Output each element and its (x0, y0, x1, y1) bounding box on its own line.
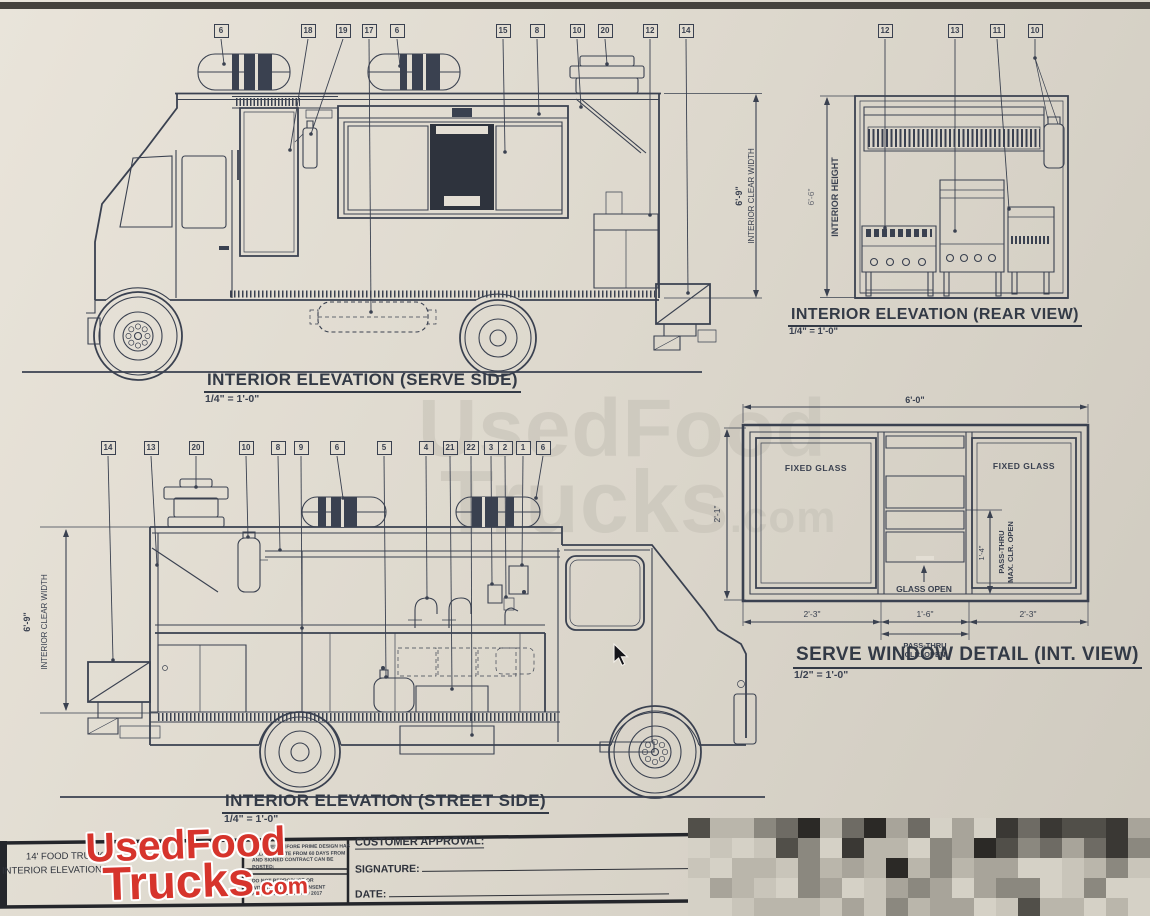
callout-13: 13 (948, 24, 963, 38)
mosaic-tile (776, 898, 798, 916)
cab-door-window (566, 556, 644, 630)
mosaic-tile (1040, 818, 1062, 838)
svg-text:1'-6": 1'-6" (917, 609, 934, 619)
mosaic-tile (1018, 858, 1040, 878)
callout-5: 5 (377, 441, 392, 455)
mosaic-tile (864, 838, 886, 858)
mosaic-tile (864, 898, 886, 916)
mosaic-tile (1062, 818, 1084, 838)
callout-3: 3 (484, 441, 499, 455)
mosaic-tile (1018, 898, 1040, 916)
rear-dim-label: INTERIOR HEIGHT (830, 157, 840, 237)
mosaic-tile (732, 898, 754, 916)
svg-text:2'-3": 2'-3" (804, 609, 821, 619)
callout-10: 10 (570, 24, 585, 38)
mosaic-tile (1128, 858, 1150, 878)
mosaic-tile (908, 878, 930, 898)
mosaic-tile (754, 838, 776, 858)
callout-14: 14 (679, 24, 694, 38)
pass-thru-glass (886, 436, 964, 562)
mosaic-tile (930, 898, 952, 916)
mosaic-tile (754, 818, 776, 838)
mosaic-tile (974, 818, 996, 838)
callout-22: 22 (464, 441, 479, 455)
mosaic-tile (1040, 898, 1062, 916)
pass-thru-side-label: PASS-THRU (997, 530, 1006, 573)
mosaic-tile (842, 858, 864, 878)
glass-open-label: GLASS OPEN (896, 584, 952, 594)
mosaic-tile (930, 818, 952, 838)
hand-sink (496, 608, 534, 674)
mosaic-tile (1062, 898, 1084, 916)
mosaic-tile (1018, 818, 1040, 838)
mosaic-tile (1040, 858, 1062, 878)
mosaic-tile (996, 878, 1018, 898)
blueprint-photo: UsedFood Trucks.com (0, 0, 1150, 916)
fixed-glass-right-label: FIXED GLASS (993, 461, 1055, 471)
mosaic-tile (798, 878, 820, 898)
towel-dispenser (509, 566, 528, 594)
usedfoodtrucks-logo: UsedFood Trucks.com (85, 824, 309, 904)
mosaic-tile (908, 898, 930, 916)
range-middle (940, 180, 1004, 296)
exhaust-hood (864, 107, 1044, 151)
mosaic-tile (688, 898, 710, 916)
mosaic-tile (842, 818, 864, 838)
mosaic-tile (688, 858, 710, 878)
mosaic-tile (974, 858, 996, 878)
street-dimension: 6'-9" INTERIOR CLEAR WIDTH (22, 527, 158, 713)
mosaic-tile (754, 858, 776, 878)
rear-view-title: INTERIOR ELEVATION (REAR VIEW) (788, 306, 1082, 327)
mosaic-tile (842, 878, 864, 898)
mosaic-tile (930, 858, 952, 878)
callout-9: 9 (294, 441, 309, 455)
street-side-title: INTERIOR ELEVATION (STREET SIDE) (222, 791, 549, 814)
callout-14: 14 (101, 441, 116, 455)
street-tank-1 (302, 497, 386, 527)
callout-8: 8 (530, 24, 545, 38)
mosaic-tile (710, 878, 732, 898)
mosaic-tile (1084, 838, 1106, 858)
mosaic-tile (820, 818, 842, 838)
callout-1: 1 (516, 441, 531, 455)
mosaic-tile (798, 838, 820, 858)
serve-side-title: INTERIOR ELEVATION (SERVE SIDE) (204, 370, 521, 393)
mosaic-tile (908, 858, 930, 878)
callout-13: 13 (144, 441, 159, 455)
mosaic-tile (886, 838, 908, 858)
mosaic-tile (996, 818, 1018, 838)
mosaic-tile (732, 858, 754, 878)
serve-side-drawing: 6'-9" INTERIOR CLEAR WIDTH (22, 54, 762, 380)
callout-8: 8 (271, 441, 286, 455)
callout-2: 2 (498, 441, 513, 455)
blueprint-line-art: 6'-9" INTERIOR CLEAR WIDTH (0, 0, 1150, 916)
mosaic-tile (710, 858, 732, 878)
soap-dispenser (488, 585, 502, 603)
street-side-drawing: 6'-9" INTERIOR CLEAR WIDTH (22, 479, 765, 798)
mosaic-tile (1106, 858, 1128, 878)
mosaic-tile (1128, 838, 1150, 858)
svg-text:6'-9": 6'-9" (734, 186, 744, 205)
mosaic-tile (864, 878, 886, 898)
callout-11: 11 (990, 24, 1005, 38)
svg-text:6'-0": 6'-0" (905, 395, 924, 405)
mosaic-tile (886, 858, 908, 878)
serve-dimension: 6'-9" INTERIOR CLEAR WIDTH (664, 94, 762, 299)
mosaic-tile (776, 858, 798, 878)
mosaic-tile (996, 858, 1018, 878)
callout-21: 21 (443, 441, 458, 455)
svg-text:2'-3": 2'-3" (1020, 609, 1037, 619)
fixed-glass-left (756, 438, 876, 588)
window-detail-drawing: 6'-0" FIXED GLASS FIXED GLASS GLASS OPE (712, 395, 1088, 659)
mosaic-tile (820, 878, 842, 898)
mosaic-tile (974, 898, 996, 916)
mosaic-tile (710, 838, 732, 858)
mosaic-tile (1084, 818, 1106, 838)
svg-text:1'-4": 1'-4" (977, 545, 986, 560)
mosaic-tile (1106, 838, 1128, 858)
mosaic-tile (952, 858, 974, 878)
range-left (862, 226, 936, 296)
mosaic-tile (710, 898, 732, 916)
mosaic-tile (1084, 878, 1106, 898)
mosaic-tile (952, 878, 974, 898)
mosaic-tile (886, 898, 908, 916)
callout-6: 6 (330, 441, 345, 455)
hatched-area-lower (400, 726, 494, 754)
mosaic-tile (820, 838, 842, 858)
three-compartment-sink (398, 648, 516, 676)
serve-rear-wheel (460, 300, 536, 376)
mosaic-tile (688, 838, 710, 858)
mosaic-tile (952, 898, 974, 916)
mosaic-tile (996, 898, 1018, 916)
mosaic-tile (776, 838, 798, 858)
fryer-right (1008, 207, 1054, 294)
mosaic-tile (1106, 878, 1128, 898)
callout-19: 19 (336, 24, 351, 38)
callout-6: 6 (214, 24, 229, 38)
mosaic-tile (974, 878, 996, 898)
mosaic-tile (710, 818, 732, 838)
mosaic-tile (1084, 858, 1106, 878)
mosaic-tile (776, 818, 798, 838)
mosaic-tile (1040, 878, 1062, 898)
mosaic-tile (732, 818, 754, 838)
mosaic-tile (776, 878, 798, 898)
callout-18: 18 (301, 24, 316, 38)
mosaic-tile (688, 818, 710, 838)
svg-text:2'-1": 2'-1" (712, 506, 722, 523)
callout-12: 12 (643, 24, 658, 38)
mosaic-tile (1018, 838, 1040, 858)
street-dim-label: INTERIOR CLEAR WIDTH (40, 574, 49, 670)
censored-region (688, 818, 1150, 916)
mosaic-tile (1040, 838, 1062, 858)
callout-10: 10 (1028, 24, 1043, 38)
svg-text:6'-6": 6'-6" (806, 189, 816, 206)
callout-15: 15 (496, 24, 511, 38)
roof-tank-1 (198, 54, 290, 90)
mosaic-tile (754, 878, 776, 898)
mosaic-tile (1084, 898, 1106, 916)
mosaic-tile (886, 878, 908, 898)
mosaic-tile (1128, 818, 1150, 838)
serve-rear-bumper (654, 284, 716, 350)
mosaic-tile (842, 838, 864, 858)
mosaic-tile (820, 898, 842, 916)
mosaic-tile (842, 898, 864, 916)
serve-cabinet (594, 192, 658, 288)
mosaic-tile (930, 878, 952, 898)
mosaic-tile (1128, 898, 1150, 916)
mosaic-tile (732, 878, 754, 898)
mosaic-tile (952, 838, 974, 858)
mosaic-tile (754, 898, 776, 916)
mosaic-tile (1062, 878, 1084, 898)
water-heater (374, 666, 414, 712)
street-rear-wheel (260, 712, 340, 792)
svg-text:MAX. CLR. OPEN: MAX. CLR. OPEN (1006, 521, 1015, 583)
mosaic-tile (1062, 838, 1084, 858)
mosaic-tile (1106, 818, 1128, 838)
mosaic-tile (798, 858, 820, 878)
roof-tank-2 (368, 54, 460, 90)
rear-view-scale: 1/4" = 1'-0" (789, 326, 838, 337)
serve-dim-label: INTERIOR CLEAR WIDTH (747, 148, 756, 244)
mosaic-tile (952, 818, 974, 838)
window-detail-scale: 1/2" = 1'-0" (794, 669, 848, 681)
callout-20: 20 (189, 441, 204, 455)
svg-text:6'-9": 6'-9" (22, 612, 32, 631)
serve-front-wheel (94, 292, 182, 380)
mouse-cursor (613, 643, 633, 669)
mosaic-tile (908, 838, 930, 858)
mosaic-tile (798, 818, 820, 838)
mosaic-tile (864, 818, 886, 838)
sink-faucets (408, 598, 471, 628)
rear-dimension: 6'-6" INTERIOR HEIGHT (806, 96, 855, 298)
callout-12: 12 (878, 24, 893, 38)
fridge (240, 108, 298, 256)
rear-view-drawing: 6'-6" INTERIOR HEIGHT (806, 58, 1068, 298)
mosaic-tile (1128, 878, 1150, 898)
serve-side-scale: 1/4" = 1'-0" (205, 393, 259, 405)
callout-6: 6 (536, 441, 551, 455)
callout-20: 20 (598, 24, 613, 38)
callout-17: 17 (362, 24, 377, 38)
fixed-glass-left-label: FIXED GLASS (785, 463, 847, 473)
window-detail-title: SERVE WINDOW DETAIL (INT. VIEW) (793, 644, 1142, 669)
mosaic-tile (1062, 858, 1084, 878)
muffler (310, 302, 436, 332)
mosaic-tile (1018, 878, 1040, 898)
mosaic-tile (688, 878, 710, 898)
mosaic-tile (1106, 898, 1128, 916)
mosaic-tile (996, 838, 1018, 858)
mosaic-tile (732, 838, 754, 858)
callout-4: 4 (419, 441, 434, 455)
mosaic-tile (908, 818, 930, 838)
mosaic-tile (886, 818, 908, 838)
mosaic-tile (930, 838, 952, 858)
mosaic-tile (974, 838, 996, 858)
mosaic-tile (864, 858, 886, 878)
serve-window (338, 106, 568, 218)
mosaic-tile (820, 858, 842, 878)
callout-6: 6 (390, 24, 405, 38)
street-extinguisher-bottle (238, 532, 268, 592)
mosaic-tile (798, 898, 820, 916)
callout-10: 10 (239, 441, 254, 455)
street-tank-2 (456, 497, 540, 527)
